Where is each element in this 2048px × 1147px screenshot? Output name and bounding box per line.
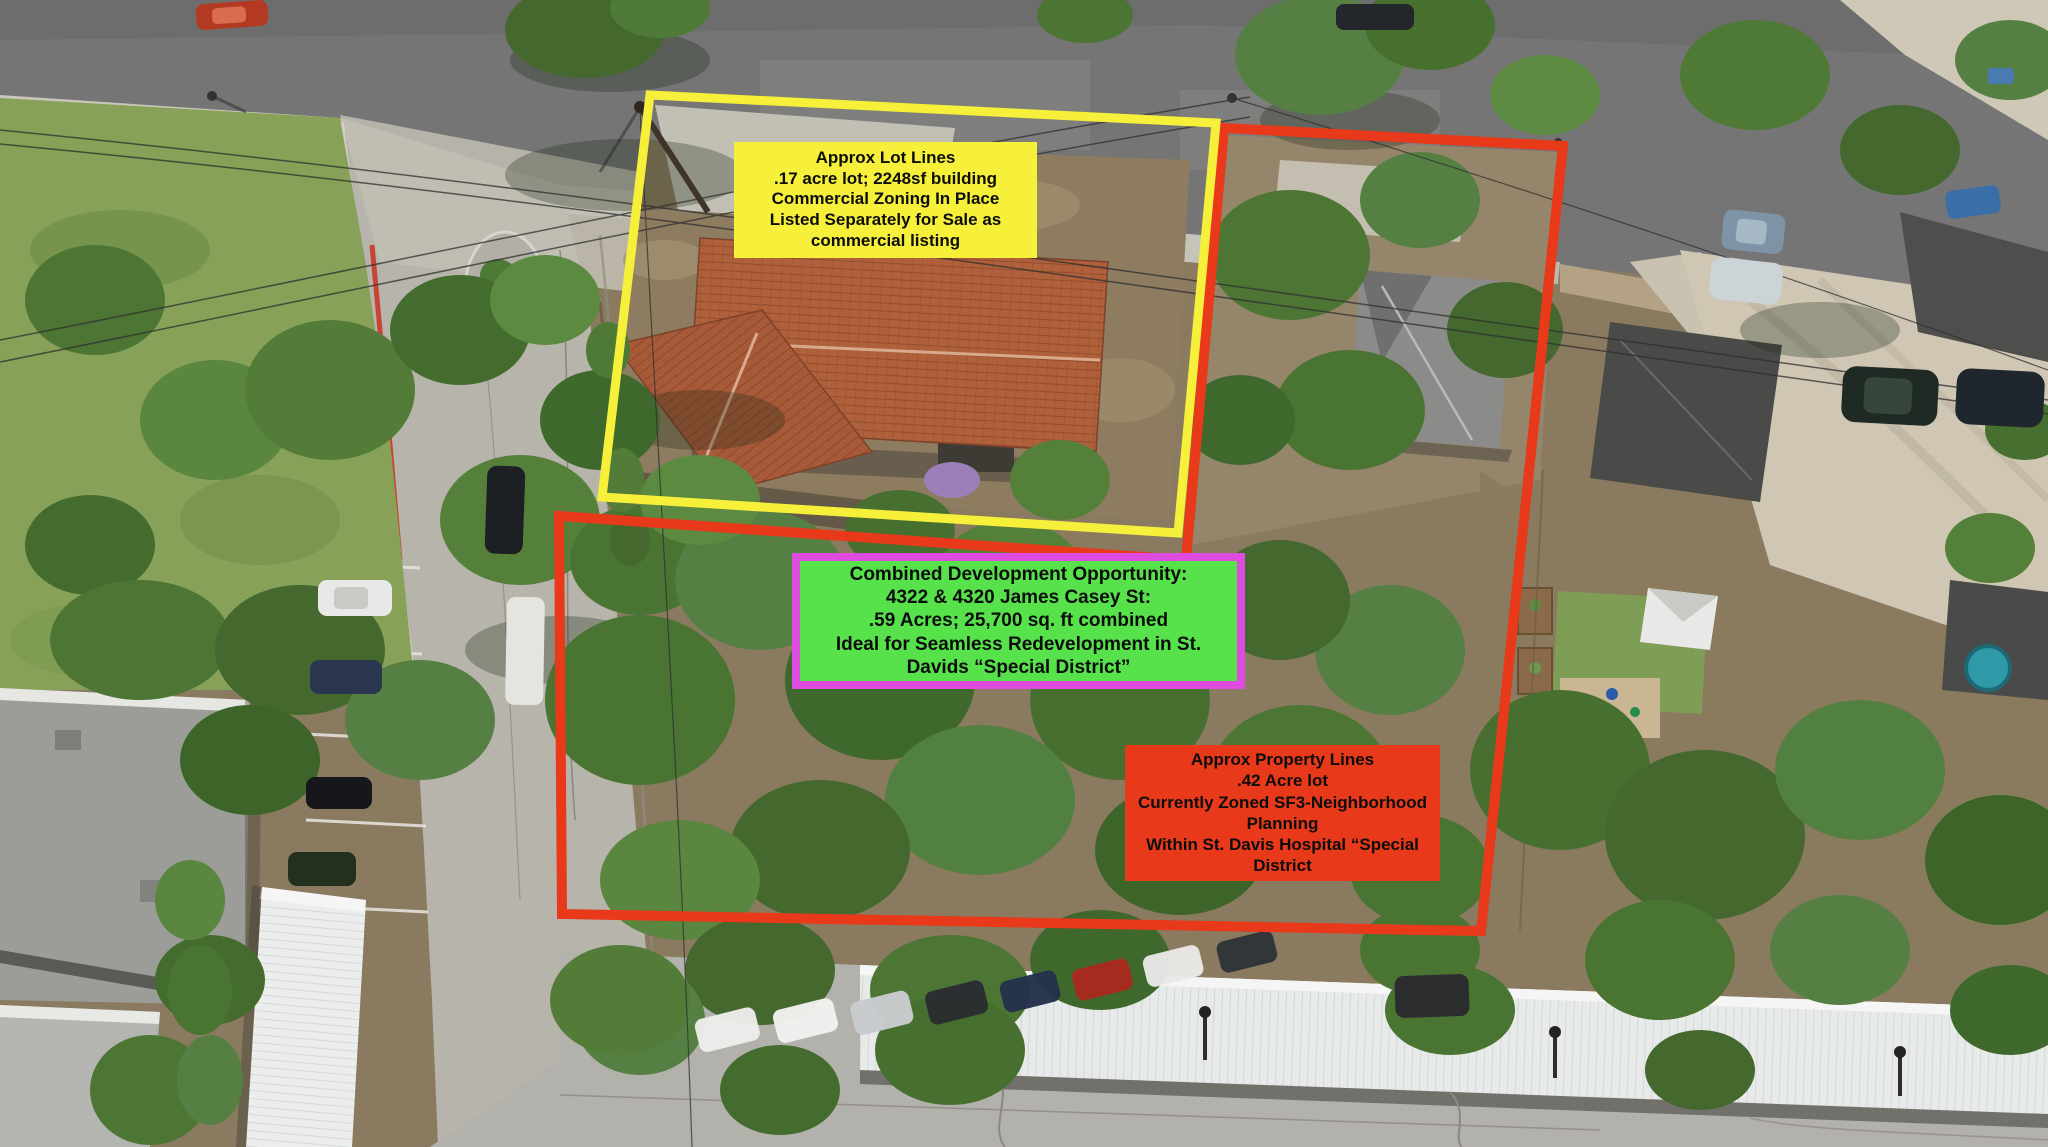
yellow-lot-label: Approx Lot Lines .17 acre lot; 2248sf bu…: [734, 142, 1037, 258]
red-property-label: Approx Property Lines .42 Acre lot Curre…: [1125, 745, 1440, 881]
aerial-listing-photo: Approx Lot Lines .17 acre lot; 2248sf bu…: [0, 0, 2048, 1147]
combined-opportunity-label: Combined Development Opportunity: 4322 &…: [792, 553, 1245, 689]
